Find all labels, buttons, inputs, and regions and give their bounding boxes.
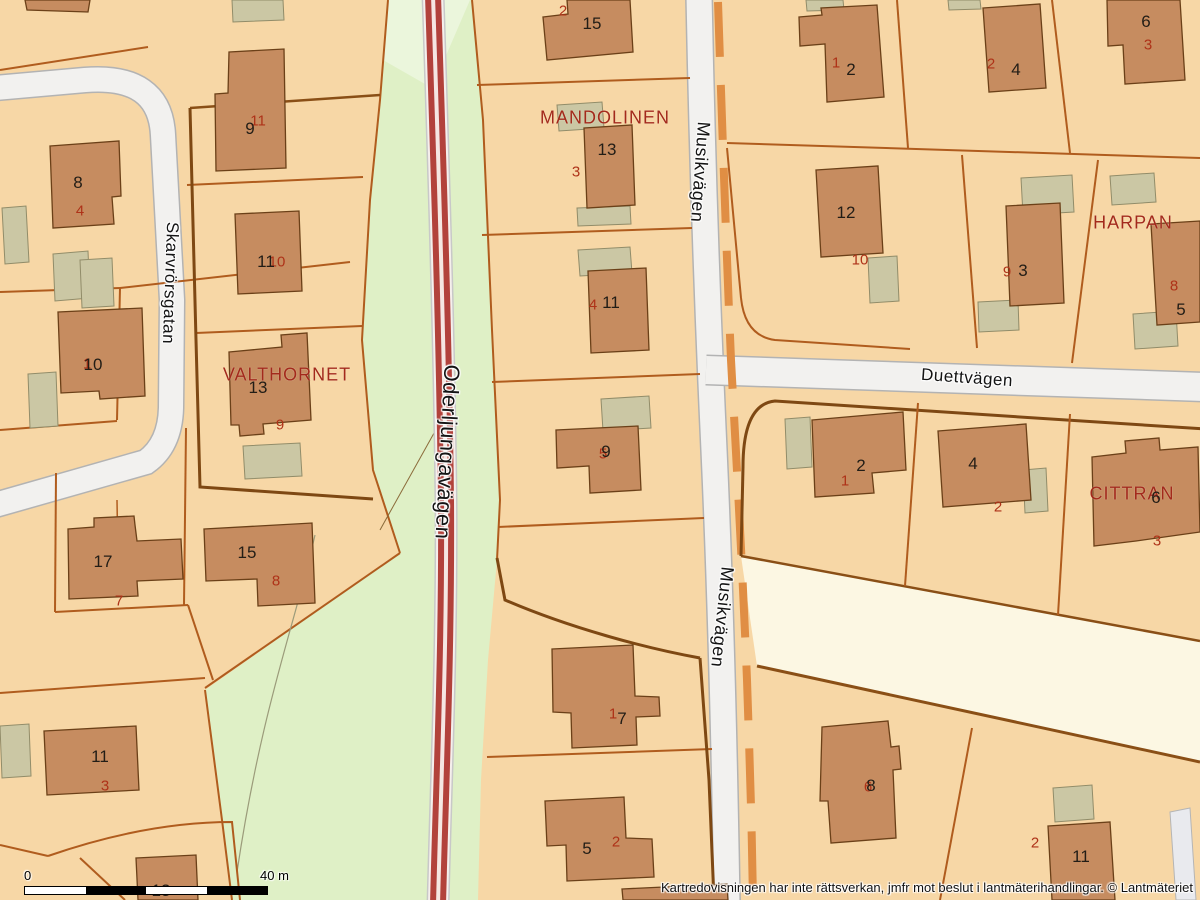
scale-bar-start-label: 0 — [24, 868, 31, 883]
scale-bar-segment — [86, 887, 147, 894]
road-duettvagen — [706, 370, 1200, 387]
attribution-text: Kartredovisningen har inte rättsverkan, … — [661, 880, 1193, 895]
scale-bar-segment — [207, 887, 268, 894]
scale-bar — [24, 886, 268, 895]
map-canvas[interactable]: MANDOLINENVALTHORNETHARPANCITTRAN 234512… — [0, 0, 1200, 900]
map-base-layer — [0, 0, 1200, 900]
scale-bar-end-label: 40 m — [260, 868, 289, 883]
scale-bar-segment — [146, 887, 207, 894]
scale-bar-segment — [25, 887, 86, 894]
